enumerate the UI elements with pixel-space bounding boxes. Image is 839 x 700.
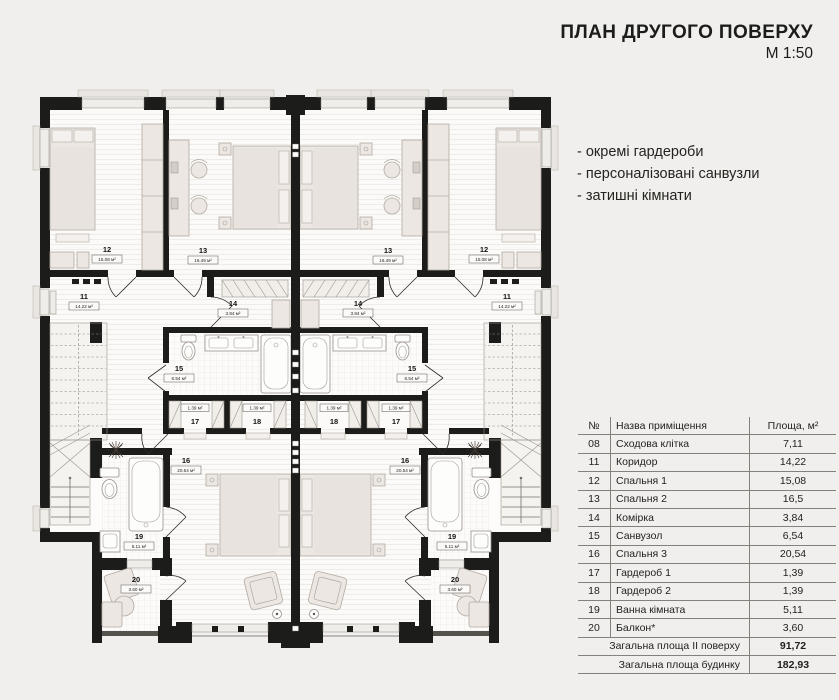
svg-text:3.84 м²: 3.84 м² (226, 311, 241, 316)
table-row: 18 Гардероб 2 1,39 (578, 582, 836, 600)
svg-text:3.60 м²: 3.60 м² (448, 587, 463, 592)
svg-text:13: 13 (384, 246, 392, 255)
svg-text:19: 19 (448, 532, 456, 541)
svg-text:14.22 м²: 14.22 м² (75, 304, 93, 309)
table-row: 12 Спальня 1 15,08 (578, 472, 836, 490)
svg-text:5.11 м²: 5.11 м² (445, 544, 460, 549)
svg-text:15.08 м²: 15.08 м² (98, 257, 116, 262)
svg-text:20.54 м²: 20.54 м² (396, 468, 414, 473)
svg-text:17: 17 (392, 417, 400, 426)
table-row: 13 Спальня 2 16,5 (578, 490, 836, 508)
svg-text:16.49 м²: 16.49 м² (379, 258, 397, 263)
svg-text:11: 11 (80, 292, 88, 301)
col-header-name: Назва приміщення (611, 417, 750, 435)
svg-text:6.54 м²: 6.54 м² (172, 376, 187, 381)
svg-text:5.11 м²: 5.11 м² (132, 544, 147, 549)
svg-text:20: 20 (451, 575, 459, 584)
unit-right (300, 90, 558, 643)
svg-text:6.54 м²: 6.54 м² (405, 376, 420, 381)
feature-item: - окремі гардероби (577, 141, 759, 163)
svg-text:17: 17 (191, 417, 199, 426)
page-title: ПЛАН ДРУГОГО ПОВЕРХУ (560, 22, 813, 44)
svg-text:14.22 м²: 14.22 м² (498, 304, 516, 309)
svg-text:19: 19 (135, 532, 143, 541)
svg-text:1.39 м²: 1.39 м² (389, 406, 404, 411)
plant-icon (107, 441, 125, 459)
svg-text:14: 14 (354, 299, 363, 308)
unit-left (33, 90, 291, 643)
svg-text:13: 13 (199, 246, 207, 255)
table-row: 08 Сходова клітка 7,11 (578, 435, 836, 453)
svg-text:15: 15 (175, 364, 183, 373)
svg-text:1.39 м²: 1.39 м² (250, 406, 265, 411)
svg-text:3.60 м²: 3.60 м² (129, 587, 144, 592)
summary-row-floor: Загальна площа ІІ поверху 91,72 (578, 637, 836, 655)
table-row: 15 Санвузол 6,54 (578, 527, 836, 545)
col-header-area: Площа, м² (750, 417, 837, 435)
svg-text:18: 18 (330, 417, 338, 426)
svg-text:16: 16 (401, 456, 409, 465)
table-row: 14 Комірка 3,84 (578, 508, 836, 526)
table-row: 19 Ванна кімната 5,11 (578, 600, 836, 618)
svg-text:20: 20 (132, 575, 140, 584)
svg-text:15.08 м²: 15.08 м² (475, 257, 493, 262)
col-header-num: № (578, 417, 611, 435)
table-row: 16 Спальня 3 20,54 (578, 545, 836, 563)
area-table: № Назва приміщення Площа, м² 08 Сходова … (578, 417, 836, 674)
table-row: 11 Коридор 14,22 (578, 453, 836, 471)
feature-item: - персоналізовані санвузли (577, 163, 759, 185)
svg-text:12: 12 (480, 245, 488, 254)
svg-text:20.54 м²: 20.54 м² (177, 468, 195, 473)
svg-text:12: 12 (103, 245, 111, 254)
feature-item: - затишні кімнати (577, 185, 759, 207)
table-header-row: № Назва приміщення Площа, м² (578, 417, 836, 435)
svg-text:1.39 м²: 1.39 м² (188, 406, 203, 411)
radiator (50, 291, 56, 314)
svg-text:14: 14 (229, 299, 238, 308)
svg-text:18: 18 (253, 417, 261, 426)
svg-text:1.39 м²: 1.39 м² (327, 406, 342, 411)
svg-text:15: 15 (408, 364, 416, 373)
feature-list: - окремі гардероби - персоналізовані сан… (577, 141, 759, 207)
plan-sheet: 12 15.08 м² 13 16.49 м² 11 14.22 м² 14 3… (0, 0, 839, 700)
svg-text:16.49 м²: 16.49 м² (194, 258, 212, 263)
table-row: 20 Балкон* 3,60 (578, 619, 836, 637)
table-row: 17 Гардероб 1 1,39 (578, 564, 836, 582)
summary-row-building: Загальна площа будинку 182,93 (578, 656, 836, 674)
scale-note: М 1:50 (766, 45, 813, 63)
svg-text:11: 11 (503, 292, 511, 301)
svg-text:16: 16 (182, 456, 190, 465)
svg-text:3.84 м²: 3.84 м² (351, 311, 366, 316)
